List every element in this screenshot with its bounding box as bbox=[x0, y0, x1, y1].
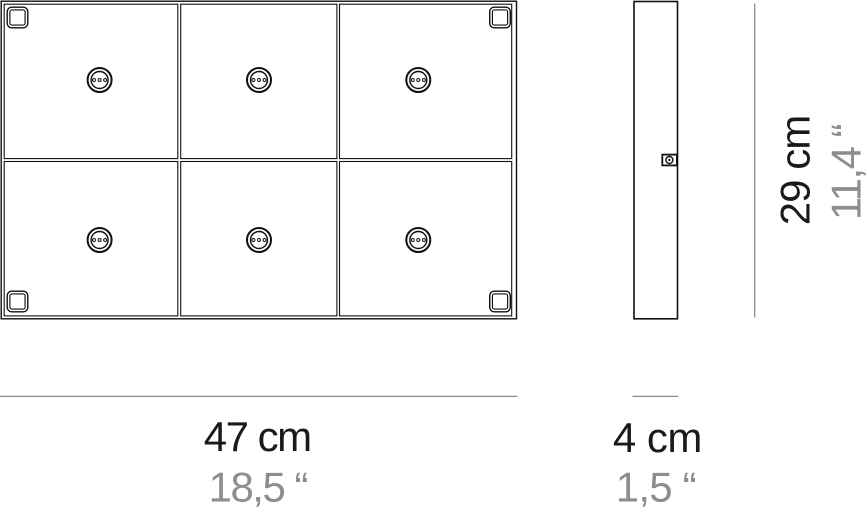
svg-text:1,5 “: 1,5 “ bbox=[616, 464, 696, 509]
svg-text:18,5 “: 18,5 “ bbox=[209, 464, 308, 509]
svg-text:29 cm: 29 cm bbox=[772, 116, 819, 225]
svg-text:11,4 “: 11,4 “ bbox=[823, 124, 867, 220]
svg-text:4 cm: 4 cm bbox=[613, 414, 702, 461]
svg-text:47 cm: 47 cm bbox=[204, 413, 311, 460]
